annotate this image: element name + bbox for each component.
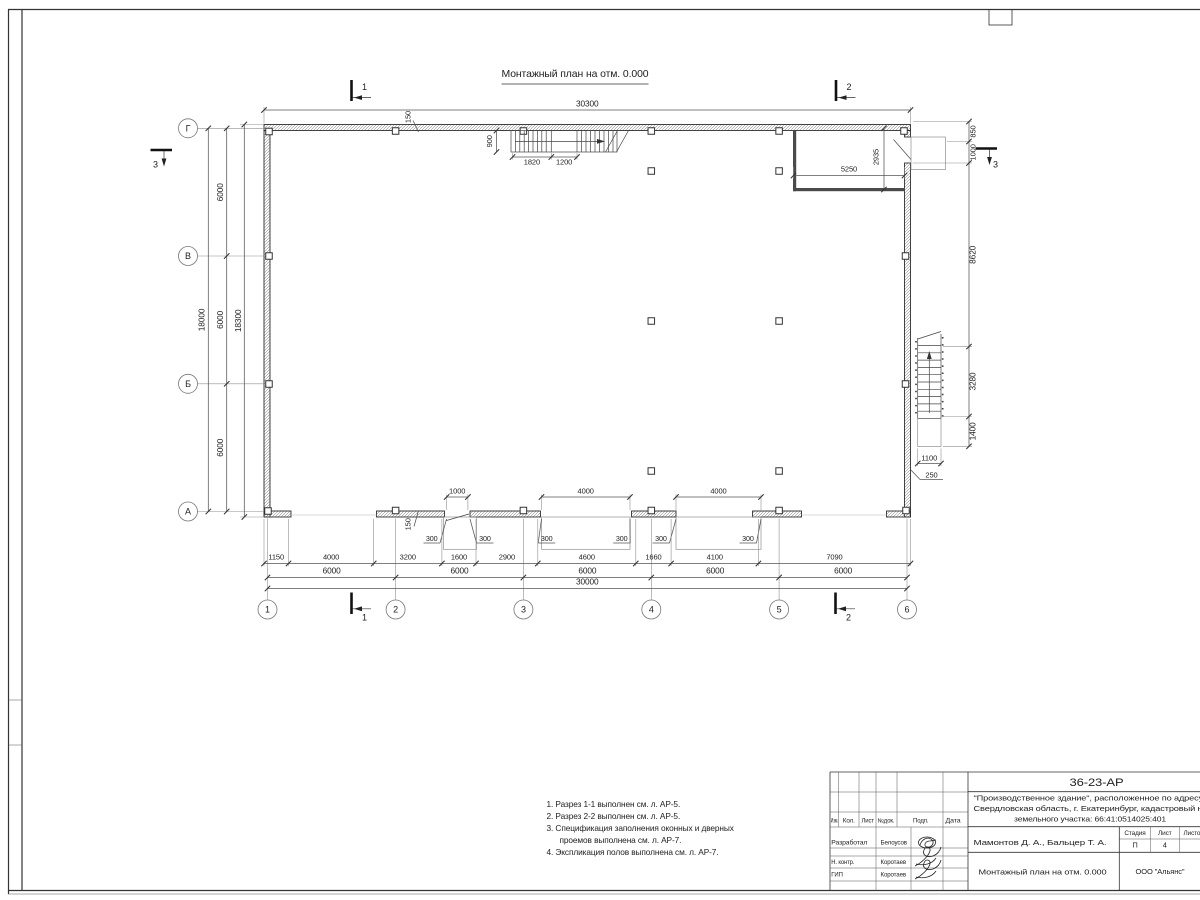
dim-label: 1100 <box>921 454 937 463</box>
axis-label: 6 <box>905 605 910 615</box>
dim-label: 1000 <box>449 487 465 496</box>
dim-label: 4000 <box>710 487 726 496</box>
stage-header: Стадия <box>1124 830 1146 837</box>
col-header: Изм. <box>831 818 839 824</box>
dim-label: 300 <box>742 534 754 543</box>
dim-left: 6000 6000 6000 18000 18300 <box>197 122 264 520</box>
dim-label: 300 <box>655 534 667 543</box>
dim-label: 8620 <box>967 245 977 264</box>
dim-label: 5250 <box>841 165 857 174</box>
section-label: 2 <box>846 613 851 623</box>
dim-right: 850 1000 8620 3280 1400 1100 250 <box>911 119 977 480</box>
dim-stair-top: 900 1820 1200 <box>485 128 580 167</box>
gate-aprons <box>444 514 762 549</box>
plan-title: Монтажный план на отм. 0.000 <box>502 69 649 84</box>
authors: Мамонтов Д. А., Бальцер Т. А. <box>974 838 1107 847</box>
project-address-line: "Производственное здание", расположенное… <box>974 794 1200 803</box>
dim-label: 6000 <box>215 438 225 457</box>
role-label: ГИП <box>831 873 843 879</box>
sheet-header: Лист <box>1158 830 1172 837</box>
dim-label: 7090 <box>826 553 842 562</box>
axis-label: 4 <box>649 605 654 615</box>
sheets-header: Листов <box>1184 830 1200 837</box>
dim-label: 6000 <box>706 566 725 576</box>
axis-label: Б <box>185 379 191 389</box>
axis-label: В <box>185 251 191 261</box>
entrance-porch <box>894 137 946 170</box>
plan-title-text: Монтажный план на отм. 0.000 <box>502 69 649 80</box>
sheet-number: 4 <box>1163 841 1167 850</box>
notes: 1. Разрез 1-1 выполнен см. л. АР-5. 2. Р… <box>547 799 735 857</box>
dim-label: 6000 <box>215 310 225 329</box>
dim-label: 1600 <box>451 553 467 562</box>
dim-label: 6000 <box>578 566 597 576</box>
dim-label: 2900 <box>499 553 515 562</box>
dim-label: 1000 <box>968 144 977 160</box>
dim-label: 1660 <box>645 553 661 562</box>
signature-squiggles <box>915 837 941 879</box>
axis-label: 5 <box>777 605 782 615</box>
project-address-line: земельного участка: 66:41:0514025:401 <box>1014 815 1166 824</box>
dim-label: 6000 <box>215 183 225 202</box>
note-line: 1. Разрез 1-1 выполнен см. л. АР-5. <box>547 799 681 809</box>
note-line: 2. Разрез 2-2 выполнен см. л. АР-5. <box>547 811 681 821</box>
person-name: Белоусов <box>881 840 908 846</box>
col-header: Лист <box>862 818 875 824</box>
dim-label: 3280 <box>967 372 977 391</box>
dim-label: 6000 <box>450 566 469 576</box>
dim-label: 300 <box>479 534 491 543</box>
dim-bottom: 1150 4000 3200 1600 2900 4600 1660 4100 … <box>261 519 913 591</box>
dim-label: 18300 <box>233 309 243 332</box>
stage-value: П <box>1132 841 1137 850</box>
dim-label: 1200 <box>556 158 572 167</box>
dim-label: 300 <box>616 534 628 543</box>
dim-label: 4600 <box>579 553 595 562</box>
exterior-walls <box>264 125 911 518</box>
project-address-line: Свердловская область, г. Екатеринбург, к… <box>974 804 1200 813</box>
person-name: Коротаев <box>881 873 907 879</box>
axis-label: А <box>185 507 191 517</box>
dim-label: 1820 <box>524 158 540 167</box>
note-line: проемов выполнена см. л. АР-7. <box>560 835 682 845</box>
note-line: 3. Спецификация заполнения оконных и две… <box>547 823 735 833</box>
axis-label: 2 <box>393 605 398 615</box>
axis-label: 1 <box>265 605 270 615</box>
interior-stair <box>511 131 629 153</box>
dim-label: 300 <box>541 534 553 543</box>
col-header: Подп. <box>913 818 929 824</box>
dim-label: 150 <box>403 111 412 123</box>
dim-label: 18000 <box>197 308 207 331</box>
role-label: Разработал <box>831 840 868 846</box>
exterior-stair <box>916 332 943 447</box>
dim-label: 6000 <box>323 566 342 576</box>
drawing-title: Монтажный план на отм. 0.000 <box>979 868 1107 877</box>
inventory-box <box>989 10 1012 26</box>
dim-label: 1400 <box>967 422 977 441</box>
columns <box>265 128 910 515</box>
wall-thickness-labels: 150 150 <box>403 111 418 531</box>
dim-label: 900 <box>485 135 494 147</box>
dim-label: 4000 <box>323 553 339 562</box>
dim-label: 300 <box>426 534 438 543</box>
dim-label: 30000 <box>576 577 599 587</box>
role-label: Н. контр. <box>831 860 854 866</box>
col-header: Дата <box>946 818 962 824</box>
section-label: 2 <box>847 82 852 92</box>
doc-number: 36-23-АР <box>1070 777 1124 789</box>
dim-label: 850 <box>968 125 977 137</box>
section-label: 1 <box>362 82 367 92</box>
person-name: Коротаев <box>881 860 907 866</box>
drawing-sheet: Монтажный план на отм. 0.000 <box>0 0 1200 900</box>
company-name: ООО "Альянс" <box>1136 867 1185 876</box>
section-label: 3 <box>993 160 998 170</box>
note-line: 4. Экспликация полов выполнена см. л. АР… <box>547 847 719 857</box>
dim-label: 150 <box>403 518 412 530</box>
section-label: 1 <box>362 613 367 623</box>
partition-walls <box>793 131 905 192</box>
dim-label: 4100 <box>707 553 723 562</box>
section-label: 3 <box>153 160 158 170</box>
axis-label: 3 <box>521 605 526 615</box>
dim-label: 30300 <box>576 99 599 109</box>
dim-label: 4000 <box>578 487 594 496</box>
dim-label: 250 <box>925 471 937 480</box>
col-header: Кол. <box>843 818 855 824</box>
dim-label: 1150 <box>268 553 284 562</box>
dim-top: 30300 <box>261 99 913 124</box>
axis-label: Г <box>186 123 191 133</box>
dim-label: 6000 <box>834 566 853 576</box>
dim-label: 2935 <box>871 149 880 165</box>
dim-label: 3200 <box>400 553 416 562</box>
col-header: №док. <box>878 817 895 824</box>
axis-grid: Г В Б А 1 2 3 4 5 6 <box>179 119 917 619</box>
door-leaf <box>894 140 912 160</box>
title-block: 36-23-АР "Производственное здание", расп… <box>830 772 1200 891</box>
dim-room: 5250 2935 <box>791 126 907 193</box>
